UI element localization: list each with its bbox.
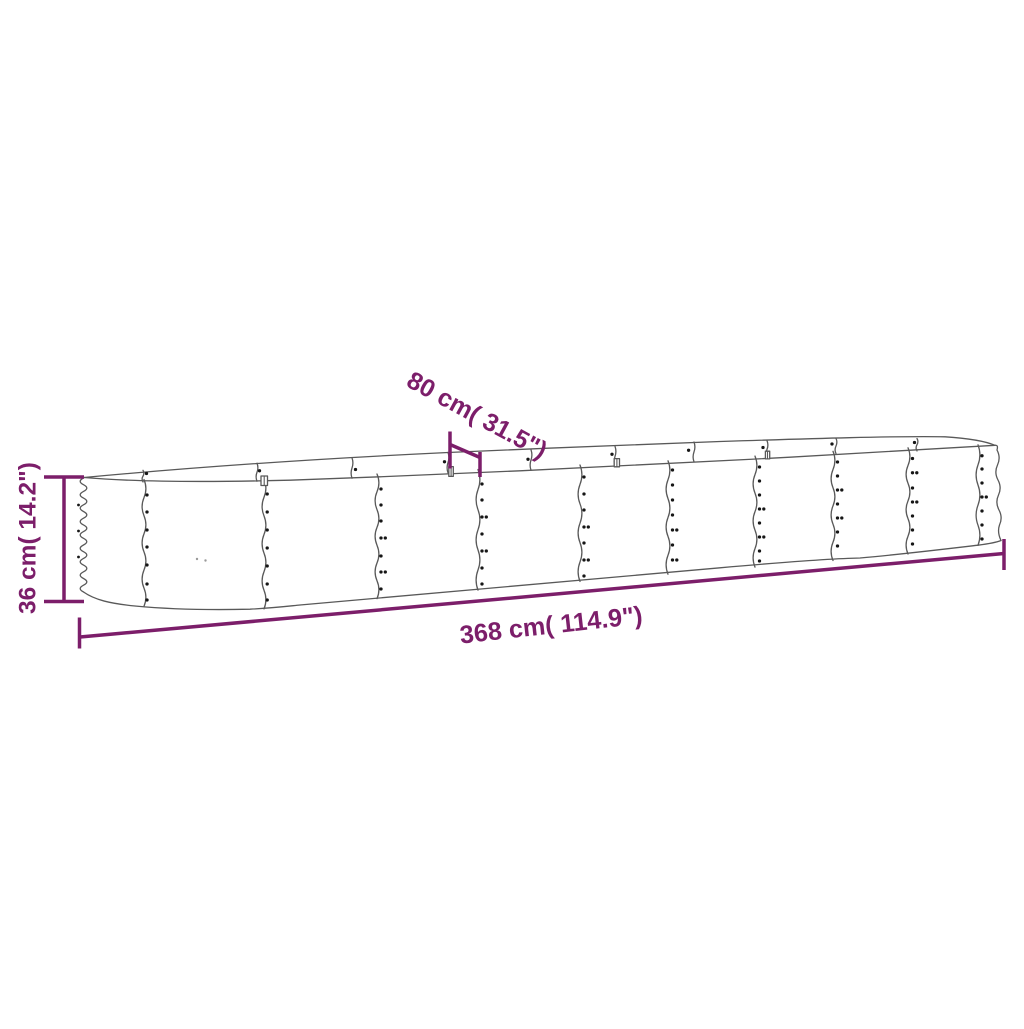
svg-text:36 cm( 14.2"): 36 cm( 14.2") (15, 462, 42, 614)
